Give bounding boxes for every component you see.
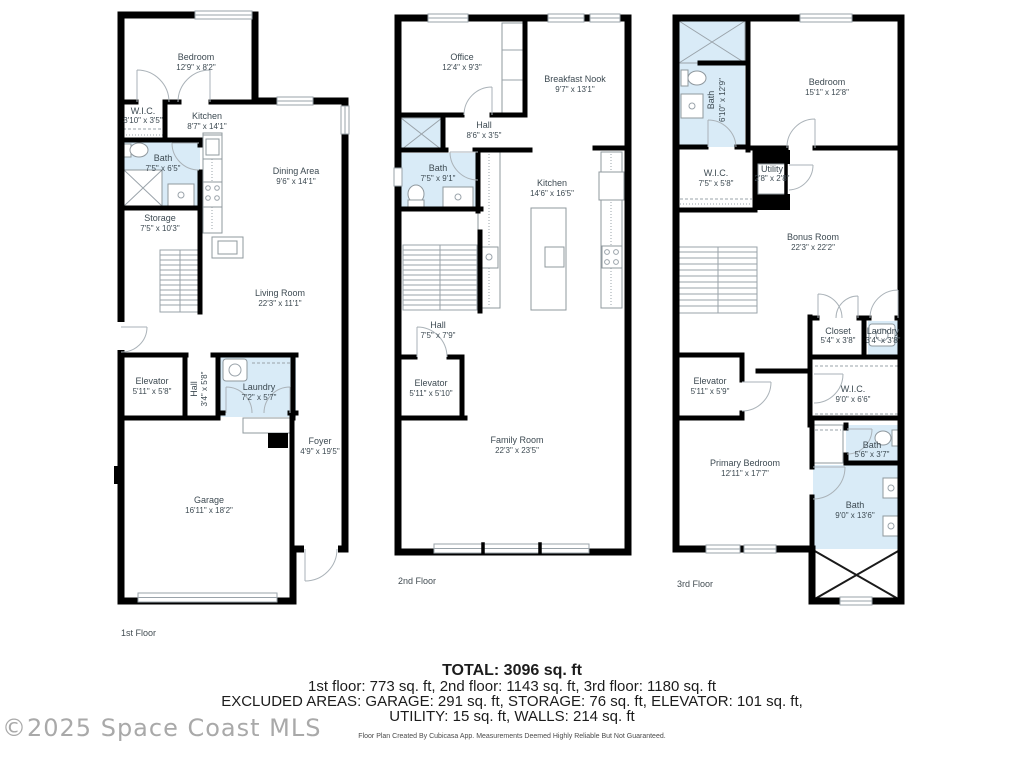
f2-family-dims: 22'3" x 23'5" bbox=[495, 446, 539, 455]
f2-hall-name: Hall bbox=[476, 120, 492, 130]
f2-kitchen-dims: 14'6" x 16'5" bbox=[530, 189, 574, 198]
floor-plan-page: Bedroom 12'9" x 8'2" W.I.C. 3'10" x 3'5"… bbox=[0, 0, 1024, 768]
f1-bedroom-dims: 12'9" x 8'2" bbox=[176, 63, 216, 72]
f2-family-name: Family Room bbox=[490, 435, 543, 445]
f1-garage-landing bbox=[243, 418, 293, 448]
f3-bedroom-name: Bedroom bbox=[809, 77, 846, 87]
f1-storage-dims: 7'5" x 10'3" bbox=[140, 224, 180, 233]
f1-stove bbox=[203, 182, 222, 207]
f2-bath-name: Bath bbox=[429, 163, 448, 173]
f3-laundry-name: Laundry bbox=[867, 326, 900, 336]
f1-stairs bbox=[160, 250, 200, 312]
f2-stove bbox=[602, 246, 622, 268]
f2-bath-dims: 7'5" x 9'1" bbox=[421, 174, 456, 183]
f3-bath2-dims: 5'6" x 3'7" bbox=[855, 450, 890, 459]
f3-elevator-name: Elevator bbox=[693, 376, 726, 386]
f3-primary-name: Primary Bedroom bbox=[710, 458, 780, 468]
f1-hall-dims: 3'4" x 5'8" bbox=[200, 371, 209, 406]
f1-bath-dims: 7'5" x 6'5" bbox=[146, 164, 181, 173]
f3-bonus-name: Bonus Room bbox=[787, 232, 839, 242]
f1-bath-name: Bath bbox=[154, 153, 173, 163]
total-area: TOTAL: 3096 sq. ft bbox=[0, 662, 1024, 679]
f3-wic1-name: W.I.C. bbox=[704, 168, 729, 178]
f3-bedroom-dims: 15'1" x 12'8" bbox=[805, 88, 849, 97]
f3-bath1-dims: 6'10" x 12'9" bbox=[718, 78, 727, 122]
f3-bath1-name: Bath bbox=[706, 91, 716, 110]
f2-elevator-dims: 5'11" x 5'10" bbox=[409, 389, 452, 398]
f2-hall-dims: 8'6" x 3'5" bbox=[467, 131, 502, 140]
f1-elevator-dims: 5'11" x 5'8" bbox=[133, 387, 172, 396]
f3-bath3-dims: 9'0" x 13'6" bbox=[835, 511, 875, 520]
f2-nook-dims: 9'7" x 13'1" bbox=[555, 85, 595, 94]
f1-laundry-dims: 7'2" x 5'7" bbox=[242, 393, 277, 402]
f2-elevator-name: Elevator bbox=[414, 378, 447, 388]
f3-wic2-name: W.I.C. bbox=[841, 384, 866, 394]
f1-kitchen-name: Kitchen bbox=[192, 111, 222, 121]
f1-foyer-dims: 4'9" x 19'5" bbox=[300, 447, 340, 456]
f1-kitchen-dims: 8'7" x 14'1" bbox=[187, 122, 227, 131]
f1-living-dims: 22'3" x 11'1" bbox=[258, 299, 301, 308]
f3-bath2-name: Bath bbox=[863, 440, 882, 450]
f3-laundry-dims: 3'4" x 3'8" bbox=[866, 336, 901, 345]
f2-stairs bbox=[403, 245, 477, 310]
f3-wic1-rod bbox=[680, 199, 752, 204]
excluded-areas-1: EXCLUDED AREAS: GARAGE: 291 sq. ft, STOR… bbox=[0, 694, 1024, 709]
f3-deck bbox=[813, 550, 900, 600]
f3-wic1-dims: 7'5" x 5'8" bbox=[699, 179, 734, 188]
f2-hall2-dims: 7'5" x 7'9" bbox=[421, 331, 456, 340]
f2-kitchen-name: Kitchen bbox=[537, 178, 567, 188]
f2-office-dims: 12'4" x 9'3" bbox=[442, 63, 482, 72]
f1-elevator-name: Elevator bbox=[135, 376, 168, 386]
f1-wic-name: W.I.C. bbox=[131, 106, 156, 116]
f3-utility-dims: 2'8" x 2'8" bbox=[755, 174, 790, 183]
f1-garage-dims: 16'11" x 18'2" bbox=[185, 506, 233, 515]
floor1-plan: Bedroom 12'9" x 8'2" W.I.C. 3'10" x 3'5"… bbox=[114, 11, 349, 638]
f1-hall-name: Hall bbox=[189, 381, 199, 397]
floor3-plan: Bath 6'10" x 12'9" Bedroom 15'1" x 12'8"… bbox=[676, 14, 901, 605]
f2-kitchen-fixtures bbox=[478, 152, 624, 310]
f1-foyer-name: Foyer bbox=[308, 436, 331, 446]
mls-watermark: ©2025 Space Coast MLS bbox=[2, 714, 321, 742]
f1-laundry-name: Laundry bbox=[243, 382, 276, 392]
f2-office-cabinets bbox=[502, 23, 523, 113]
f2-hall2-name: Hall bbox=[430, 320, 446, 330]
f2-office-name: Office bbox=[450, 52, 473, 62]
f1-wic-rod bbox=[123, 129, 163, 135]
floor2-plan: Office 12'4" x 9'3" Breakfast Nook 9'7" … bbox=[394, 14, 628, 586]
f1-garage-name: Garage bbox=[194, 495, 224, 505]
f1-dining-name: Dining Area bbox=[273, 166, 320, 176]
f1-dining-dims: 9'6" x 14'1" bbox=[276, 177, 316, 186]
f3-primary-dims: 12'11" x 17'7" bbox=[721, 469, 769, 478]
f1-kitchen-counter bbox=[203, 133, 243, 258]
f3-bonus-dims: 22'3" x 22'2" bbox=[791, 243, 835, 252]
f1-living-name: Living Room bbox=[255, 288, 305, 298]
f3-wic2-dims: 9'0" x 6'6" bbox=[836, 395, 871, 404]
f3-linen-closet bbox=[813, 425, 843, 463]
f2-fridge bbox=[599, 172, 624, 200]
f3-closet-name: Closet bbox=[825, 326, 851, 336]
f1-bedroom-name: Bedroom bbox=[178, 52, 215, 62]
f2-floor-label: 2nd Floor bbox=[398, 576, 436, 586]
f3-floor-label: 3rd Floor bbox=[677, 579, 713, 589]
f1-floor-label: 1st Floor bbox=[121, 628, 156, 638]
floorplan-svg: Bedroom 12'9" x 8'2" W.I.C. 3'10" x 3'5"… bbox=[0, 0, 1024, 655]
floor-areas: 1st floor: 773 sq. ft, 2nd floor: 1143 s… bbox=[0, 679, 1024, 694]
f3-closet-dims: 5'4" x 3'8" bbox=[821, 336, 856, 345]
f2-nook-name: Breakfast Nook bbox=[544, 74, 606, 84]
f1-wic-dims: 3'10" x 3'5" bbox=[123, 116, 163, 125]
f3-bath3-name: Bath bbox=[846, 500, 865, 510]
f1-storage-name: Storage bbox=[144, 213, 176, 223]
f3-utility-name: Utility bbox=[761, 164, 783, 174]
f3-elevator-dims: 5'11" x 5'9" bbox=[691, 387, 730, 396]
f3-stairs bbox=[679, 247, 757, 313]
